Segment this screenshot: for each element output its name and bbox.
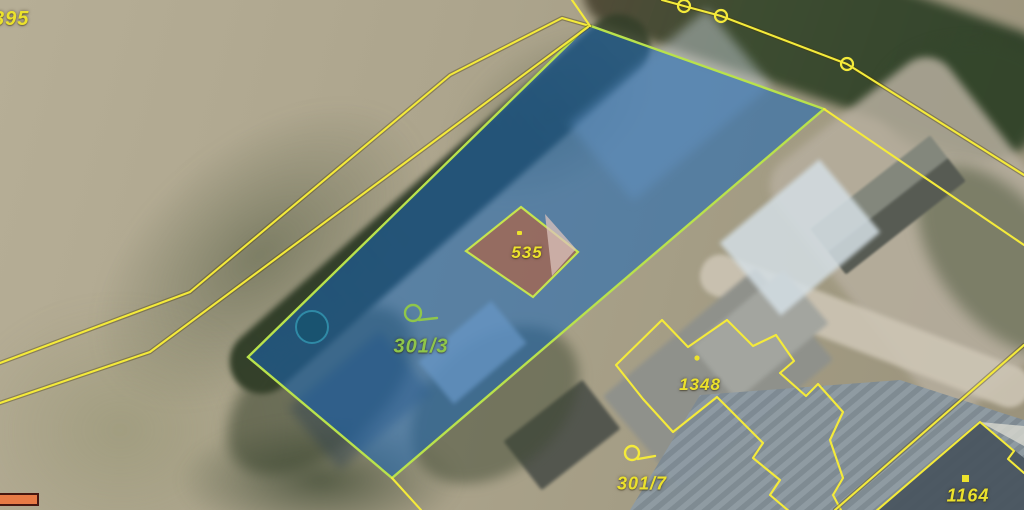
building-535-point-dot [517, 231, 522, 235]
parcel-label-301-3: 301/3 [393, 336, 448, 359]
land-use-symbol-301-7 [625, 446, 655, 460]
scale-bar [0, 493, 39, 506]
parcel-1348-point-dot [694, 355, 699, 360]
parcel-1164-point-dot [962, 475, 969, 482]
parcel-label-535: 535 [511, 243, 542, 263]
parcel-label-1348: 1348 [679, 375, 721, 395]
pool-circle [296, 311, 328, 343]
map-viewport[interactable]: 395 535 301/3 1348 301/7 1164 [0, 0, 1024, 510]
boundary-line [392, 478, 421, 510]
parcel-label-395: 395 [0, 8, 29, 31]
parcel-label-1164: 1164 [947, 486, 990, 507]
boundary-line [824, 109, 1024, 245]
parcel-label-301-7: 301/7 [617, 474, 667, 495]
